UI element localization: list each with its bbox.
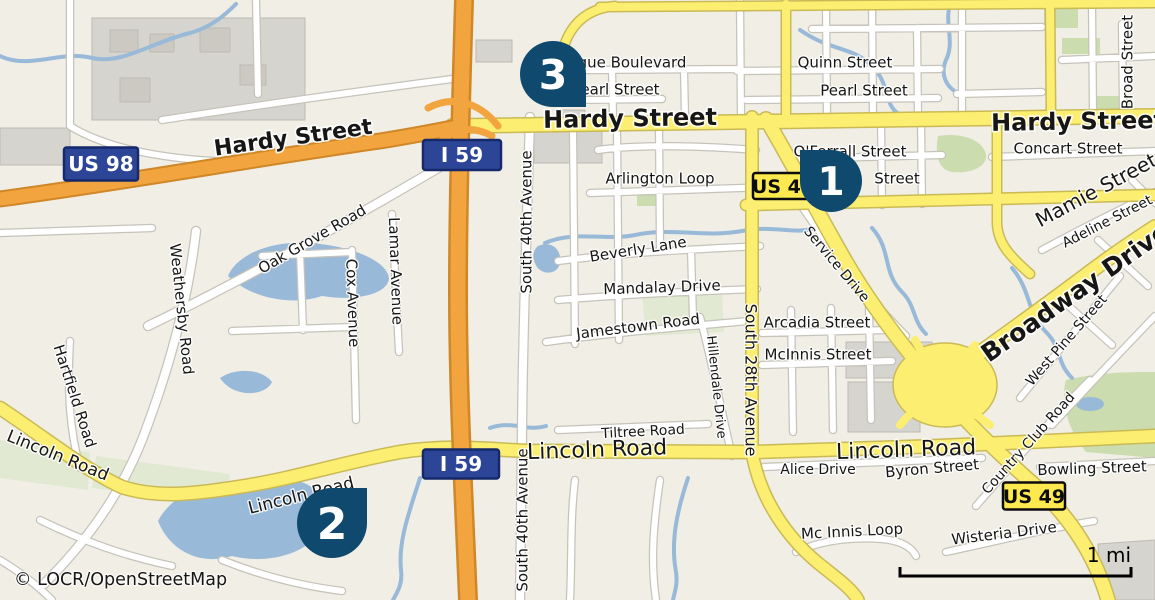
map-marker-3[interactable]: 3	[520, 41, 586, 107]
industrial-area	[0, 128, 70, 165]
street-label: Arcadia Street	[764, 313, 871, 331]
street-label: Hardy Street	[543, 103, 717, 134]
route-shield-label: I 59	[440, 452, 482, 476]
street-label: South 28th Avenue	[741, 304, 760, 457]
street-label: earl Street	[580, 80, 659, 98]
street-label: Pearl Street	[820, 81, 908, 99]
building-area	[476, 40, 512, 62]
map-viewport: Hardy StreetHardy StreetHardy StreetQuin…	[0, 0, 1155, 600]
street-label: South 40th Avenue	[513, 448, 531, 591]
street-label: Quinn Street	[798, 53, 893, 71]
route-shield-label: US 98	[68, 152, 133, 176]
scale-bar-label: 1 mi	[1087, 543, 1131, 567]
street-label: Alice Drive	[780, 462, 855, 478]
route-shield: US 49	[1003, 483, 1065, 510]
marker-number: 3	[539, 51, 568, 99]
map-attribution: © LOCR/OpenStreetMap	[14, 570, 227, 590]
street-label: Lincoln Road	[527, 435, 668, 465]
map-marker-1[interactable]: 1	[800, 150, 862, 212]
route-shield: US 98	[64, 148, 138, 181]
marker-number: 1	[817, 160, 844, 205]
street-label: Cox Avenue	[342, 258, 363, 347]
street-label: McInnis Street	[765, 345, 872, 363]
street-label: Bowling Street	[1037, 457, 1147, 479]
street-label: Street	[874, 169, 920, 187]
street-label: South 40th Avenue	[517, 150, 535, 293]
route-shield: I 59	[423, 450, 499, 479]
street-label: Lamar Avenue	[385, 217, 407, 326]
route-shield-label: US 49	[1003, 486, 1065, 508]
street-label: Arlington Loop	[605, 169, 714, 187]
map-canvas[interactable]: Hardy StreetHardy StreetHardy StreetQuin…	[0, 0, 1155, 600]
route-shield-label: I 59	[441, 143, 483, 167]
street-label: Hardy Street	[991, 106, 1155, 137]
map-marker-2[interactable]: 2	[297, 488, 367, 558]
building	[110, 30, 138, 52]
street-label: Broad Street	[1118, 15, 1136, 109]
marker-number: 2	[317, 499, 348, 550]
building	[200, 28, 230, 52]
building	[240, 65, 266, 85]
route-shield: I 59	[423, 140, 501, 170]
street-label: Concart Street	[1014, 139, 1123, 157]
building	[120, 78, 150, 102]
street-label: gue Boulevard	[578, 53, 687, 71]
